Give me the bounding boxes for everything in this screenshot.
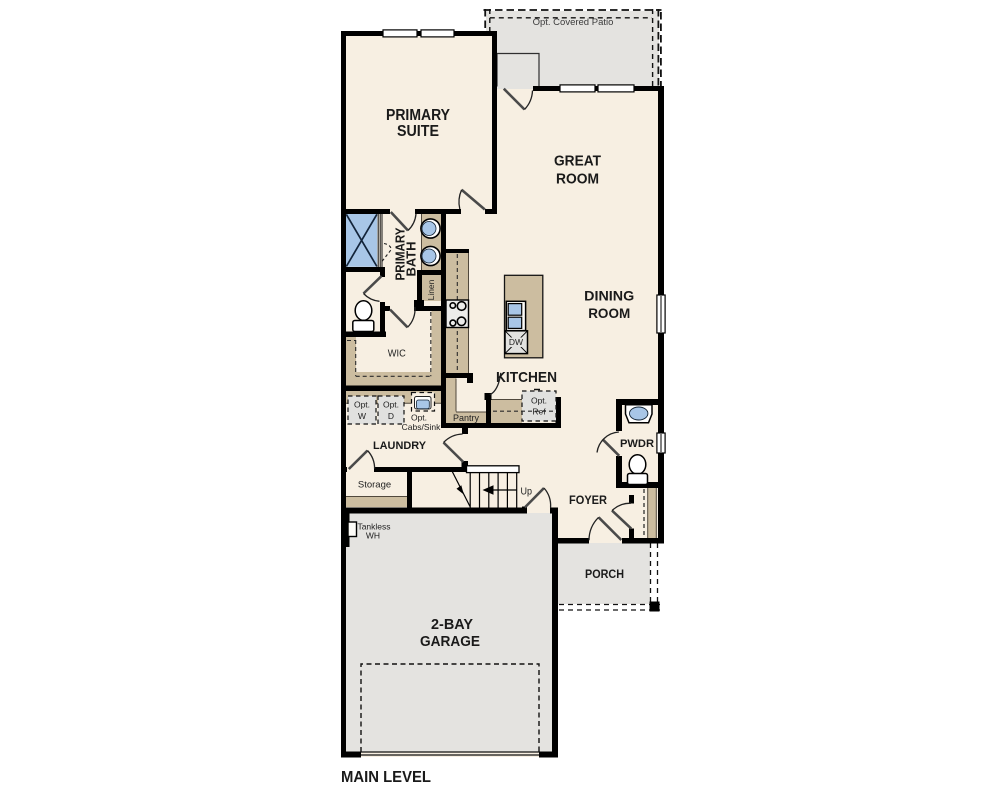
svg-text:DW: DW bbox=[509, 337, 523, 347]
svg-text:WH: WH bbox=[366, 531, 380, 541]
svg-text:GREAT: GREAT bbox=[554, 154, 601, 170]
svg-text:KITCHEN: KITCHEN bbox=[496, 369, 557, 386]
svg-text:Linen: Linen bbox=[426, 279, 436, 300]
svg-text:D: D bbox=[388, 411, 394, 421]
svg-text:Opt.: Opt. bbox=[531, 396, 547, 406]
svg-text:WIC: WIC bbox=[388, 348, 406, 360]
svg-text:2-BAY: 2-BAY bbox=[431, 617, 473, 633]
svg-text:PORCH: PORCH bbox=[585, 567, 624, 581]
svg-text:Opt. Covered Patio: Opt. Covered Patio bbox=[533, 17, 614, 28]
svg-text:Opt.: Opt. bbox=[354, 400, 370, 410]
svg-text:Opt.: Opt. bbox=[411, 413, 427, 423]
svg-text:ROOM: ROOM bbox=[588, 306, 630, 321]
svg-text:Up: Up bbox=[521, 487, 533, 498]
svg-text:LAUNDRY: LAUNDRY bbox=[373, 440, 427, 452]
svg-text:W: W bbox=[358, 411, 366, 421]
svg-text:MAIN LEVEL: MAIN LEVEL bbox=[341, 769, 431, 786]
svg-text:Opt.: Opt. bbox=[383, 400, 399, 410]
svg-text:DINING: DINING bbox=[584, 289, 634, 304]
svg-text:Cabs/Sink: Cabs/Sink bbox=[402, 422, 441, 432]
svg-text:GARAGE: GARAGE bbox=[420, 634, 480, 650]
svg-text:PRIMARY: PRIMARY bbox=[386, 107, 450, 124]
svg-text:SUITE: SUITE bbox=[397, 123, 439, 140]
svg-text:Storage: Storage bbox=[358, 480, 391, 491]
svg-text:ROOM: ROOM bbox=[556, 172, 599, 188]
svg-text:Pantry: Pantry bbox=[453, 413, 479, 424]
svg-text:FOYER: FOYER bbox=[569, 493, 607, 507]
svg-text:PWDR: PWDR bbox=[620, 438, 654, 450]
svg-text:BATH: BATH bbox=[404, 242, 419, 277]
